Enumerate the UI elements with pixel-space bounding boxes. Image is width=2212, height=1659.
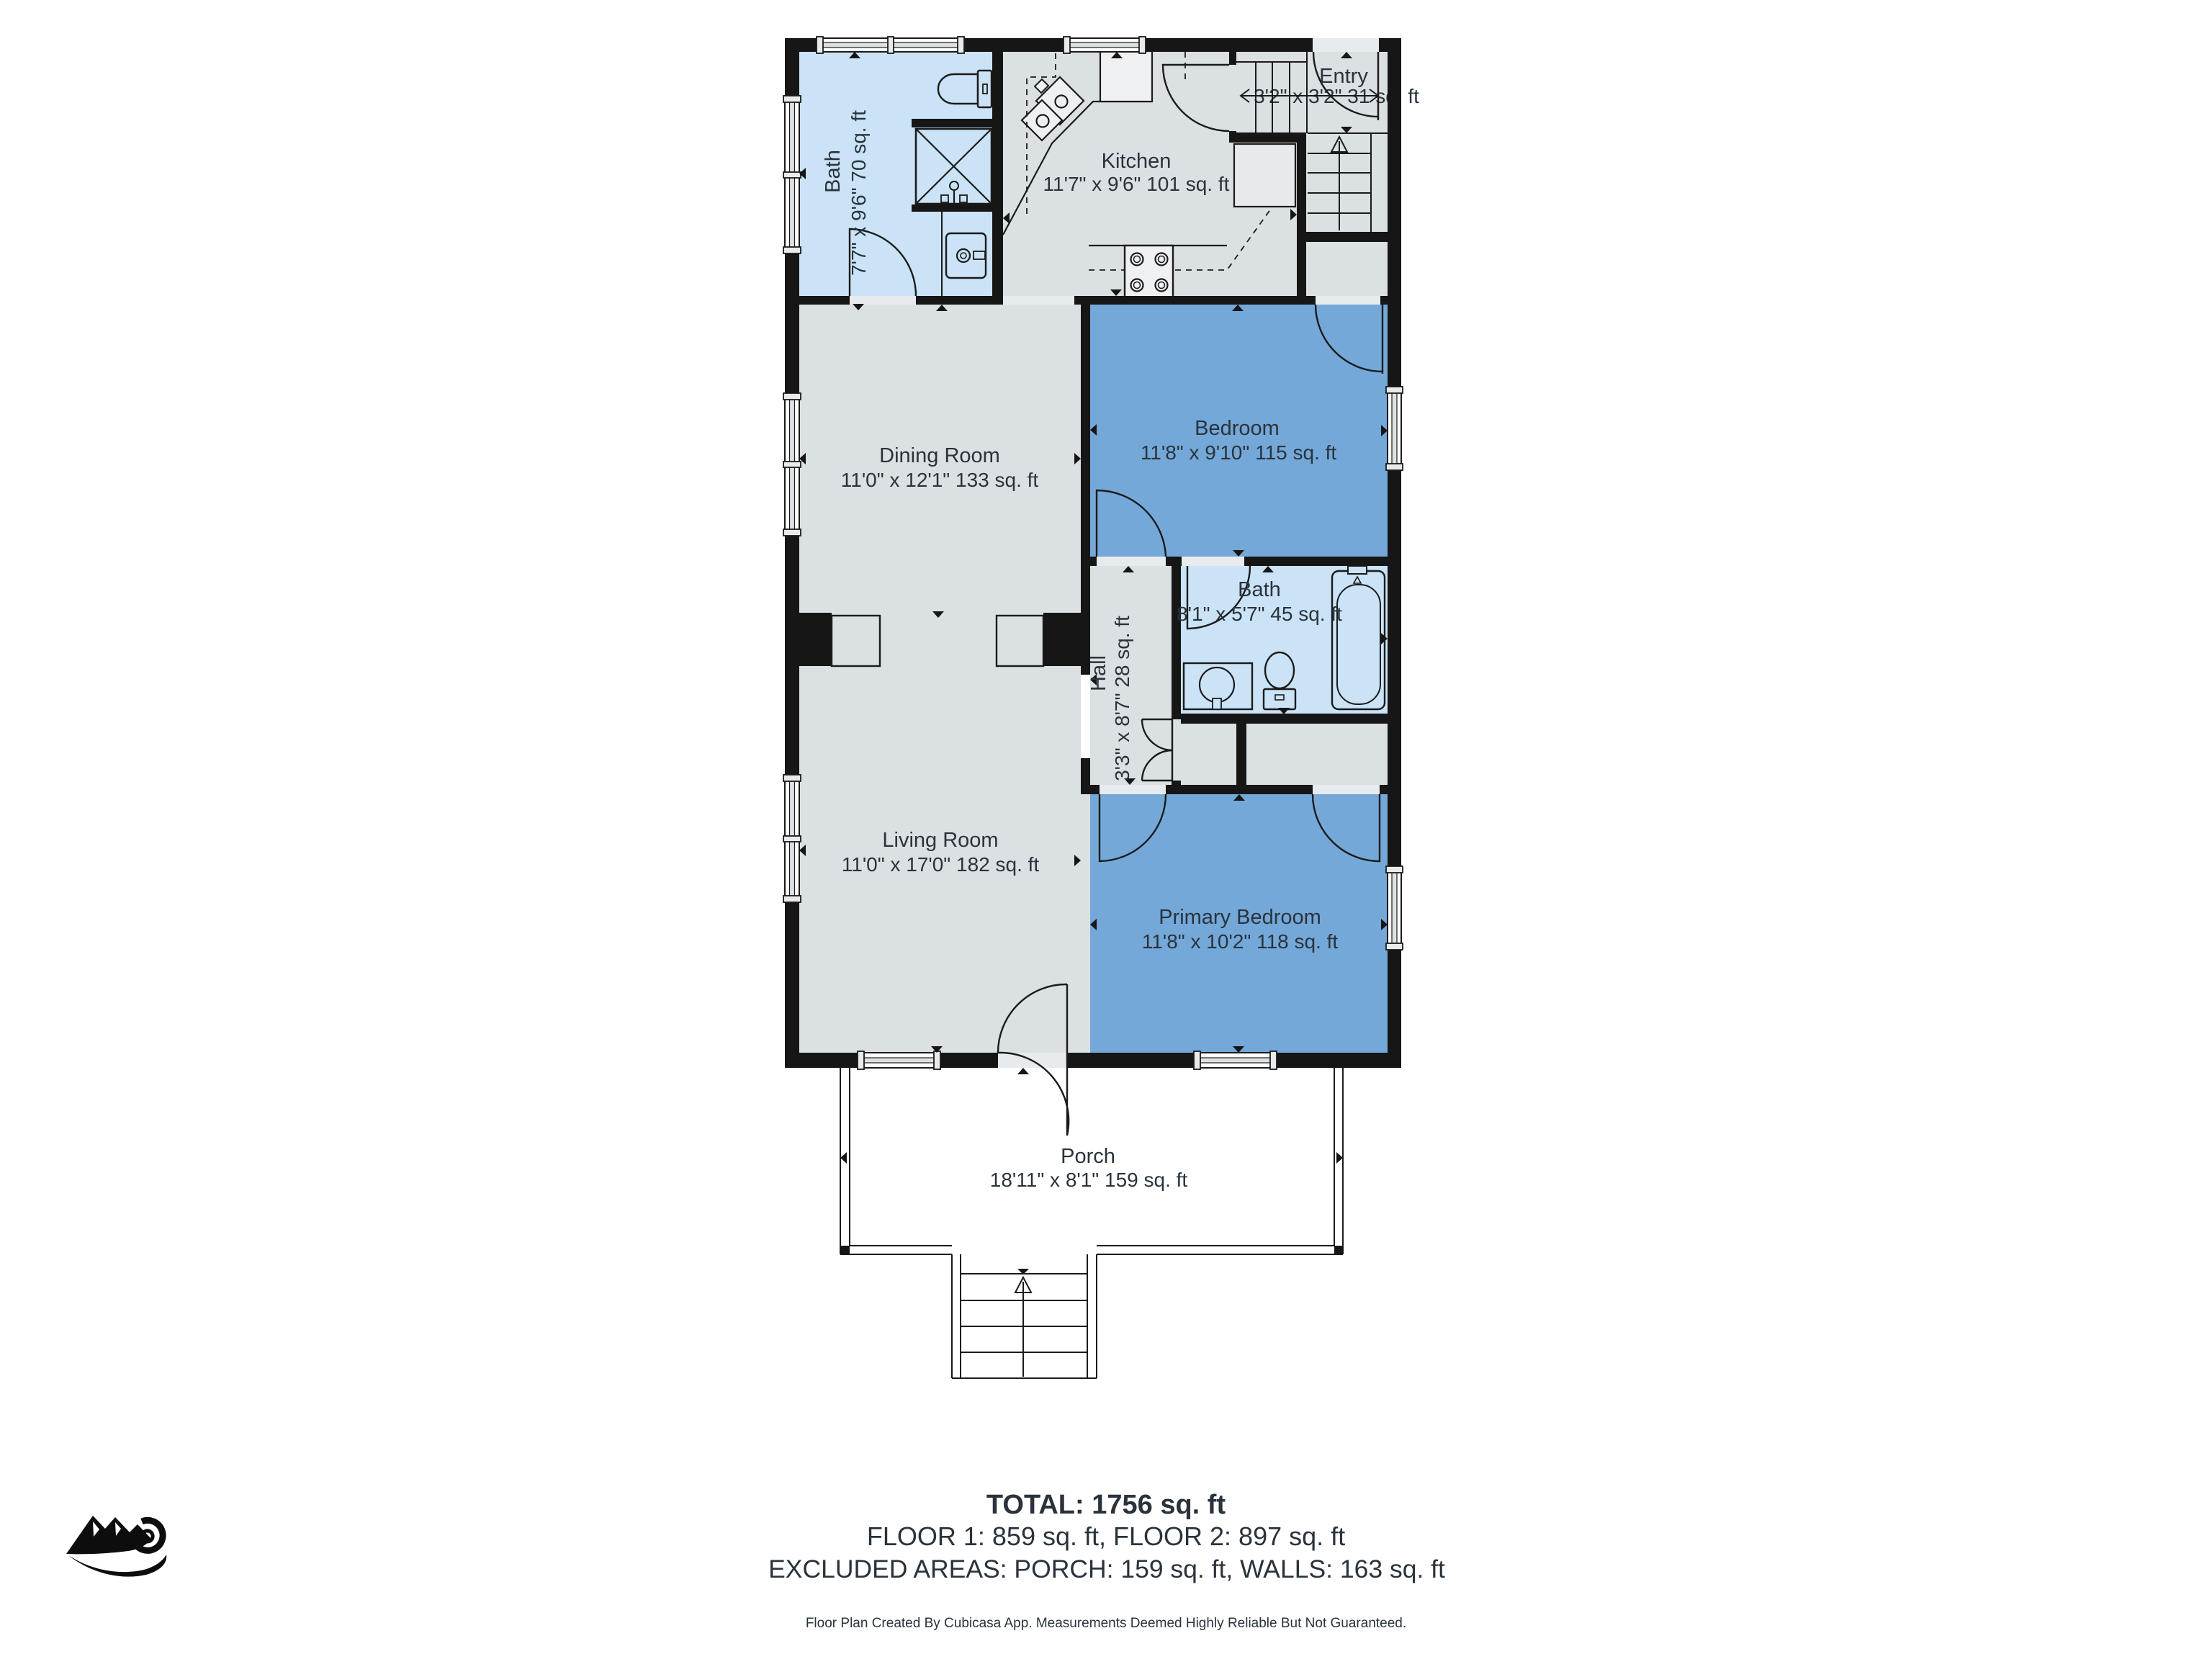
- svg-text:Living Room: Living Room: [882, 829, 998, 852]
- svg-text:Porch: Porch: [1061, 1145, 1115, 1168]
- svg-text:Bath: Bath: [822, 150, 845, 193]
- svg-text:11'7" x 9'6" 101 sq. ft: 11'7" x 9'6" 101 sq. ft: [1043, 173, 1230, 195]
- svg-text:Dining Room: Dining Room: [879, 444, 1000, 467]
- svg-text:Floor Plan Created By Cubicasa: Floor Plan Created By Cubicasa App. Meas…: [806, 1616, 1406, 1631]
- svg-text:FLOOR 1: 859 sq. ft, FLOOR 2:: FLOOR 1: 859 sq. ft, FLOOR 2: 897 sq. ft: [867, 1521, 1345, 1551]
- svg-text:3'3" x 8'7" 28 sq. ft: 3'3" x 8'7" 28 sq. ft: [1111, 616, 1133, 781]
- svg-text:Hall: Hall: [1087, 655, 1110, 691]
- svg-text:7'7" x 9'6" 70 sq. ft: 7'7" x 9'6" 70 sq. ft: [848, 110, 870, 276]
- svg-text:8'1" x 5'7" 45 sq. ft: 8'1" x 5'7" 45 sq. ft: [1177, 603, 1342, 625]
- svg-text:Primary Bedroom: Primary Bedroom: [1159, 906, 1321, 929]
- svg-text:Kitchen: Kitchen: [1102, 150, 1172, 173]
- svg-text:11'8" x 10'2" 118 sq. ft: 11'8" x 10'2" 118 sq. ft: [1142, 930, 1339, 953]
- svg-text:11'0" x 12'1" 133 sq. ft: 11'0" x 12'1" 133 sq. ft: [841, 469, 1039, 491]
- svg-text:11'0" x 17'0" 182 sq. ft: 11'0" x 17'0" 182 sq. ft: [842, 853, 1040, 876]
- svg-text:Bath: Bath: [1238, 578, 1281, 601]
- svg-text:11'8" x 9'10" 115 sq. ft: 11'8" x 9'10" 115 sq. ft: [1141, 441, 1337, 464]
- svg-text:Entry: Entry: [1319, 65, 1368, 88]
- svg-text:18'11" x 8'1" 159 sq. ft: 18'11" x 8'1" 159 sq. ft: [990, 1169, 1188, 1191]
- svg-text:EXCLUDED AREAS: PORCH: 159 sq.: EXCLUDED AREAS: PORCH: 159 sq. ft, WALLS…: [768, 1555, 1445, 1583]
- svg-text:Bedroom: Bedroom: [1195, 417, 1280, 440]
- svg-text:TOTAL: 1756 sq. ft: TOTAL: 1756 sq. ft: [986, 1490, 1226, 1520]
